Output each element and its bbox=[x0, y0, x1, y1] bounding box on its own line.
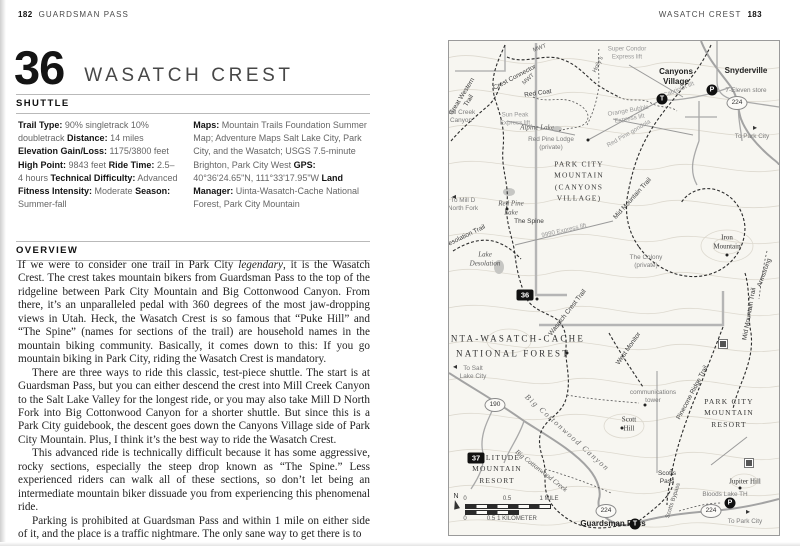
scale-tick-label: 1 MILE bbox=[539, 496, 558, 502]
parking-marker: P bbox=[725, 498, 736, 509]
highway-shield: 224 bbox=[727, 96, 748, 110]
stat-row: Fitness Intensity: Moderate bbox=[18, 186, 135, 196]
direction-arrow-icon: ▸ bbox=[746, 507, 750, 517]
point-marker bbox=[536, 298, 539, 301]
book-spread: 182GUARDSMAN PASS 36 WASATCH CREST SHUTT… bbox=[0, 0, 800, 546]
scale-labels: 00.51 KILOMETER bbox=[465, 516, 585, 523]
map-label: To Park City bbox=[728, 518, 762, 526]
trailhead-marker: T bbox=[657, 94, 668, 105]
point-marker bbox=[644, 404, 647, 407]
map-label: Red PineLake bbox=[498, 199, 523, 217]
scale-tick-label: 0 bbox=[463, 496, 466, 502]
overview-paragraph: There are three ways to ride this classi… bbox=[18, 367, 370, 448]
map-label: Bloods Lake TH bbox=[702, 491, 747, 499]
map-label: UINTA-WASATCH-CACHE bbox=[448, 333, 585, 344]
map-label: The Spine bbox=[514, 218, 544, 226]
scale-tick-label: 1 KILOMETER bbox=[497, 516, 537, 522]
page-edge-shadow bbox=[0, 0, 6, 546]
scale-labels: 00.51 MILE bbox=[465, 496, 585, 503]
km-scale-bar bbox=[465, 510, 519, 515]
direction-arrow-icon: ◂ bbox=[452, 192, 456, 202]
stats-column-left: Trail Type: 90% singletrack 10% doubletr… bbox=[18, 119, 179, 211]
highway-shield: 190 bbox=[485, 398, 506, 412]
map-label: Jupiter Hill bbox=[729, 477, 761, 486]
left-running-header: 182GUARDSMAN PASS bbox=[18, 10, 129, 19]
stat-row: Elevation Gain/Loss: 1175/3800 feet bbox=[18, 146, 169, 156]
parking-marker: P bbox=[707, 85, 718, 96]
map-label: IronMountain bbox=[713, 234, 740, 253]
trailhead-marker: T bbox=[630, 519, 641, 530]
mile-scale-bar bbox=[465, 504, 551, 509]
stat-row: Distance: 14 miles bbox=[67, 133, 144, 143]
point-marker bbox=[739, 487, 742, 490]
shuttle-section-header: SHUTTLE bbox=[16, 94, 370, 114]
map-label: Alpine Lake bbox=[520, 124, 554, 133]
ride-number-badge: 37 bbox=[468, 453, 485, 464]
overview-text: If we were to consider one trail in Park… bbox=[18, 259, 370, 542]
map-label: Red Pine Lodge(private) bbox=[528, 136, 574, 152]
ride-stats: Trail Type: 90% singletrack 10% doubletr… bbox=[18, 119, 370, 211]
direction-arrow-icon: ▸ bbox=[753, 123, 757, 133]
scale-tick-label: 0 bbox=[463, 516, 466, 522]
stat-row: High Point: 9843 feet bbox=[18, 160, 109, 170]
point-marker bbox=[587, 139, 590, 142]
map-label: PARK CITYMOUNTAIN(CANYONSVILLAGE) bbox=[554, 159, 604, 204]
direction-arrow-icon: ◂ bbox=[453, 362, 457, 372]
point-marker bbox=[566, 352, 569, 355]
map-scale-bar: 00.51 MILE00.51 KILOMETER bbox=[465, 496, 585, 523]
point-marker bbox=[621, 427, 624, 430]
map-label: The Colony(private) bbox=[630, 254, 663, 270]
building-marker bbox=[745, 459, 753, 467]
map-label: Super CondorExpress lift bbox=[608, 45, 647, 61]
map-label: LakeDesolation bbox=[470, 250, 501, 268]
map-label: CanyonsVillage bbox=[659, 67, 693, 87]
overview-paragraph: Parking is prohibited at Guardsman Pass … bbox=[18, 515, 370, 542]
map-label: ScottsPass bbox=[658, 470, 676, 486]
right-running-title: WASATCH CREST bbox=[659, 10, 742, 19]
right-running-header: WASATCH CREST183 bbox=[659, 10, 762, 19]
left-running-title: GUARDSMAN PASS bbox=[39, 10, 129, 19]
point-marker bbox=[726, 254, 729, 257]
map-label: PARK CITYMOUNTAINRESORT bbox=[704, 396, 754, 430]
trail-map: MWTMWTCrest ConnectorGreat WesternTrailR… bbox=[448, 40, 780, 536]
map-label: ScottHill bbox=[622, 416, 636, 435]
ride-title: 36 WASATCH CREST bbox=[14, 44, 294, 91]
map-label: NATIONAL FOREST bbox=[456, 348, 570, 359]
highway-shield: 224 bbox=[596, 504, 617, 518]
stat-row: Technical Difficulty: Advanced bbox=[51, 173, 178, 183]
overview-section-header: OVERVIEW bbox=[16, 241, 370, 261]
ride-number-badge: 36 bbox=[517, 290, 534, 301]
building-marker bbox=[719, 340, 727, 348]
left-page-number: 182 bbox=[18, 10, 33, 19]
scale-tick-label: 0.5 bbox=[487, 516, 495, 522]
north-arrow-glyph bbox=[452, 499, 460, 509]
map-label: Mill CreekCanyon bbox=[448, 109, 475, 125]
right-page-number: 183 bbox=[747, 10, 762, 19]
map-label: To Park City bbox=[735, 133, 769, 141]
highway-shield: 224 bbox=[701, 504, 722, 518]
map-label: To SaltLake City bbox=[460, 365, 487, 381]
overview-paragraph: This advanced ride is technically diffic… bbox=[18, 447, 370, 514]
overview-paragraph: If we were to consider one trail in Park… bbox=[18, 259, 370, 367]
map-label: communicationstower bbox=[630, 389, 676, 405]
point-marker bbox=[506, 208, 509, 211]
page-bottom-shadow bbox=[0, 542, 800, 546]
ride-number: 36 bbox=[14, 44, 64, 91]
scale-tick-label: 0.5 bbox=[503, 496, 511, 502]
stat-row: Maps: Mountain Trails Foundation Summer … bbox=[193, 120, 367, 170]
stats-column-right: Maps: Mountain Trails Foundation Summer … bbox=[193, 119, 370, 211]
map-label: Snyderville bbox=[725, 66, 768, 76]
ride-name: WASATCH CREST bbox=[84, 66, 293, 91]
map-label: 7-Eleven store bbox=[725, 87, 766, 95]
north-arrow: N bbox=[453, 493, 459, 509]
